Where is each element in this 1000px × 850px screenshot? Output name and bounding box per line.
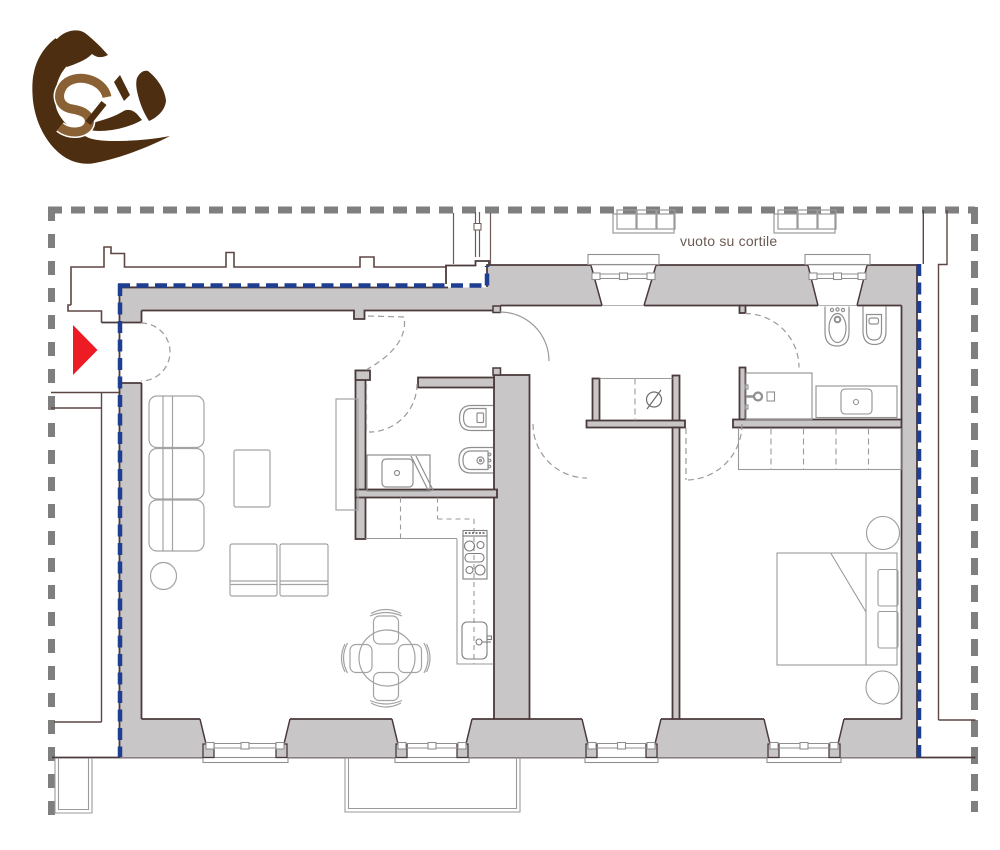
- svg-text:vuoto su cortile: vuoto su cortile: [680, 233, 777, 249]
